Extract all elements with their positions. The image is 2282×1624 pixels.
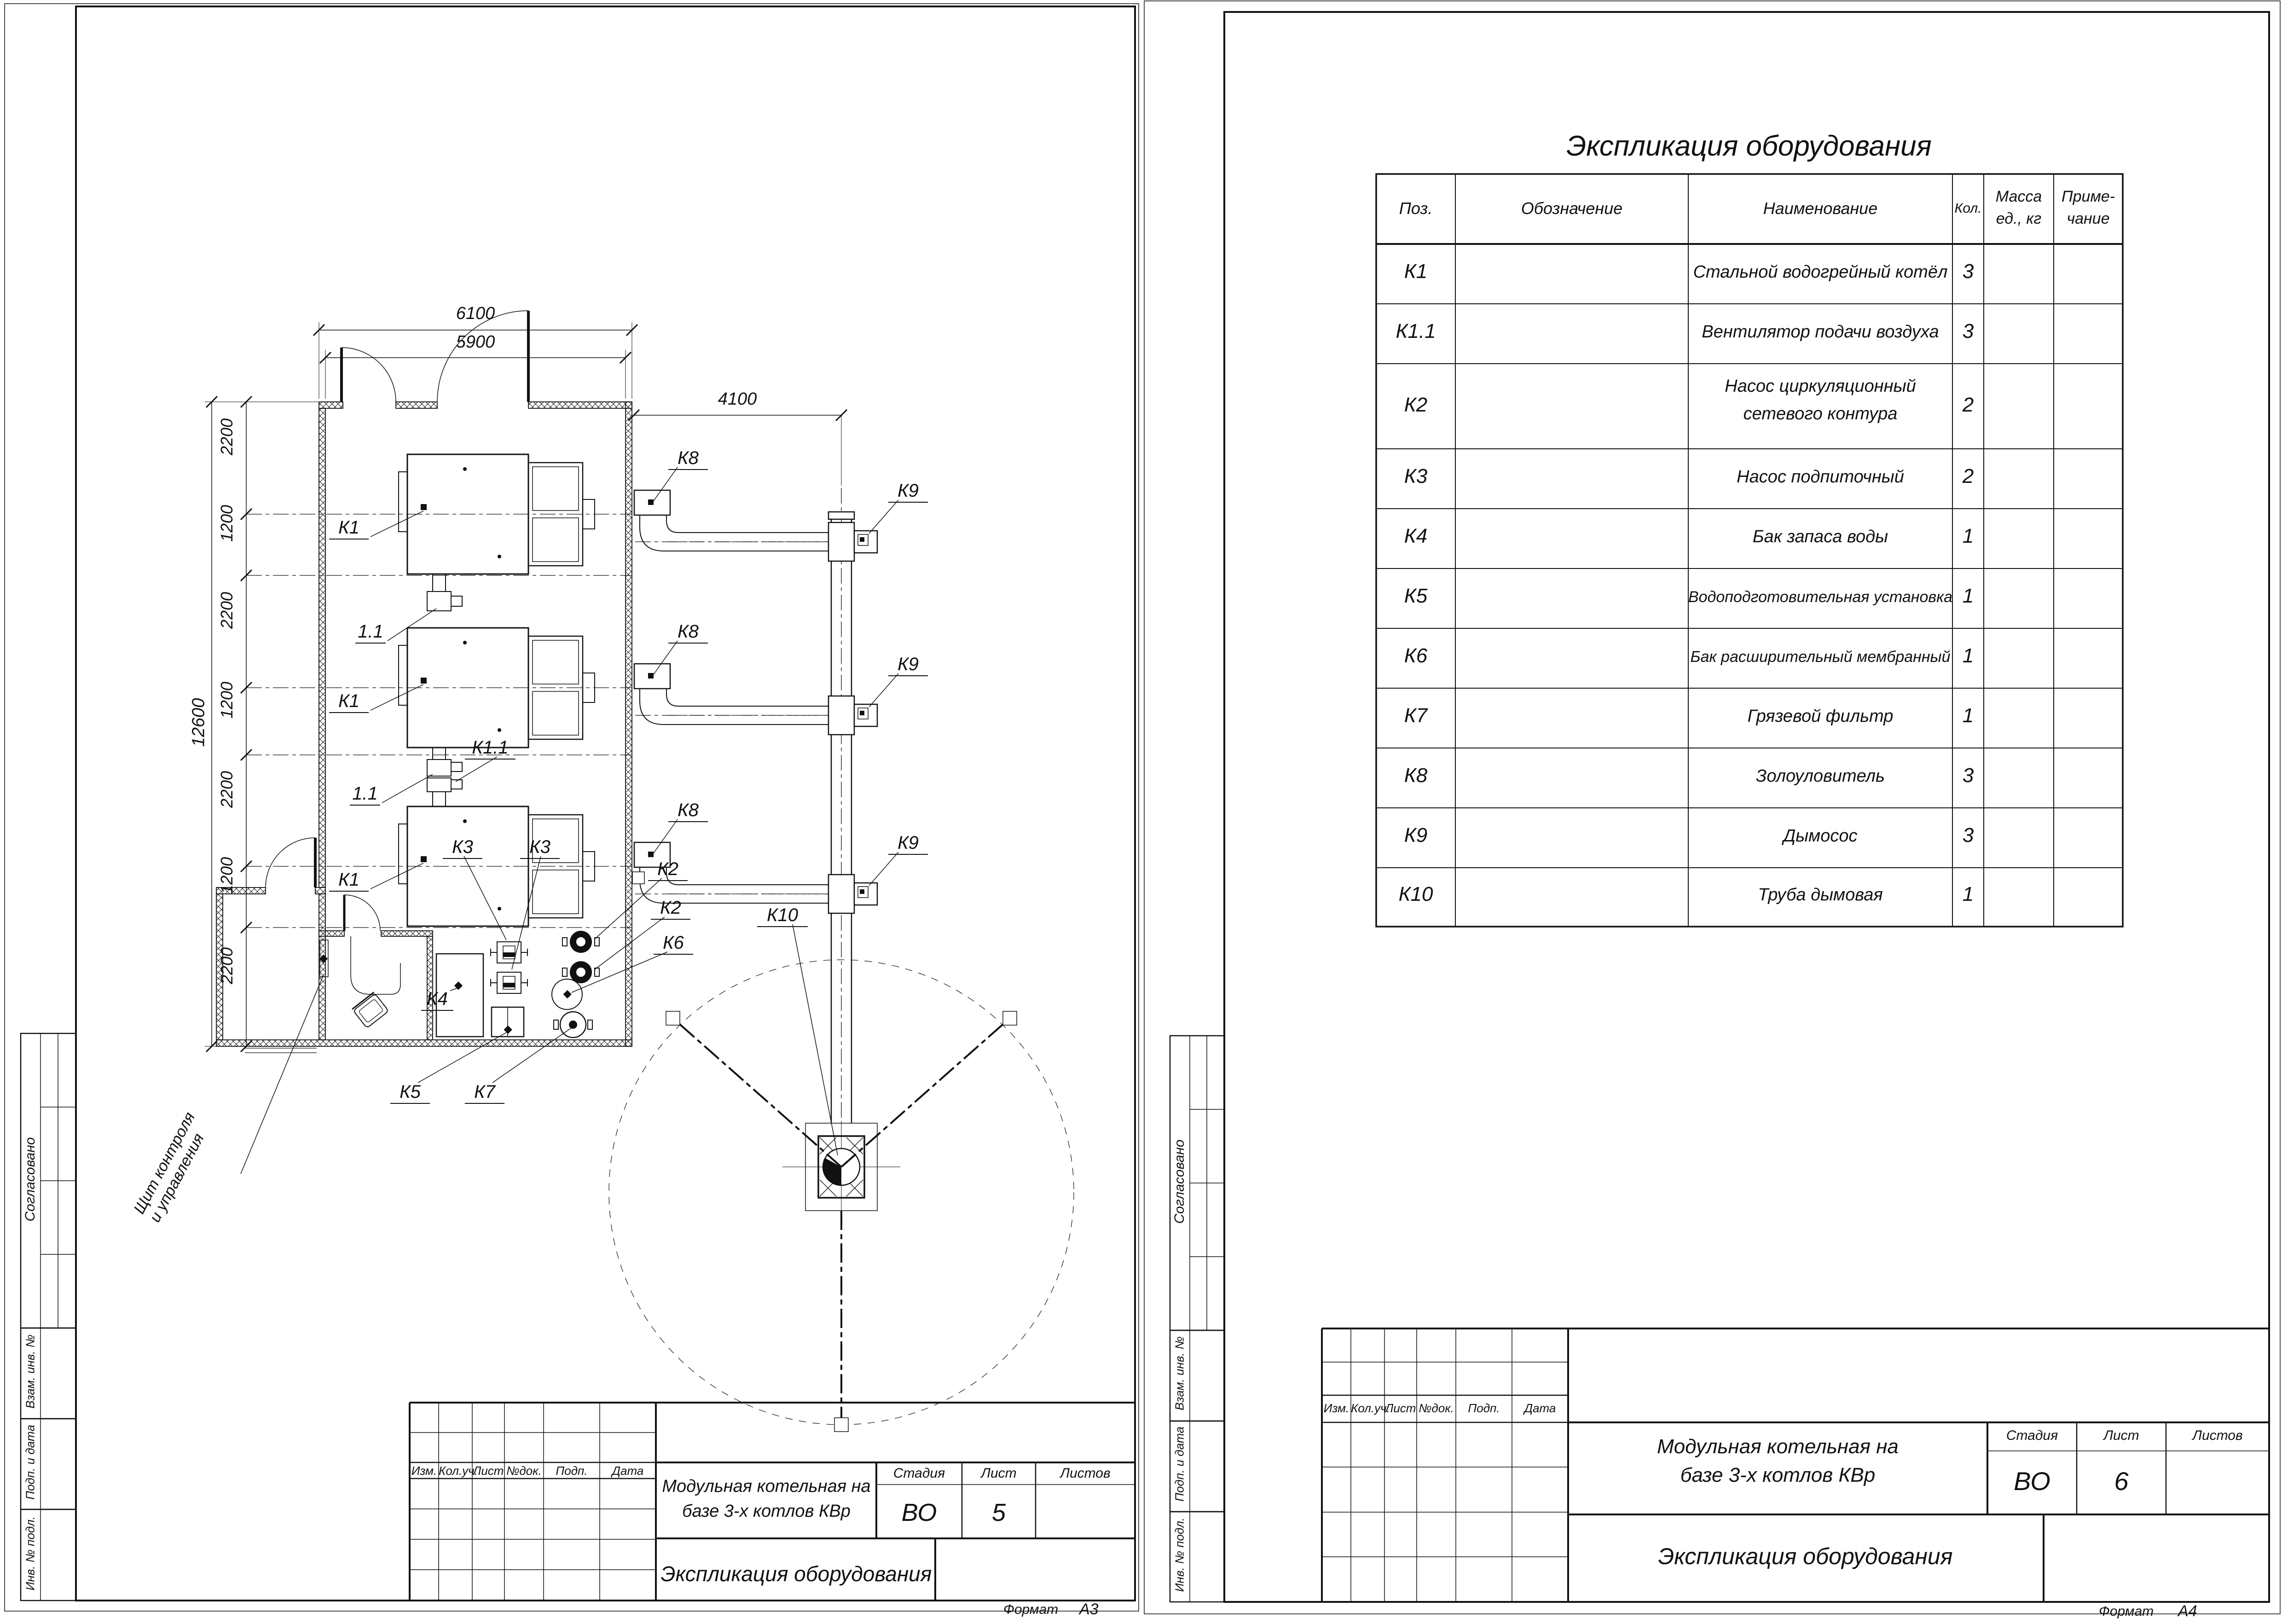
dim-top-outer: 6100 [443,304,508,324]
col-name: Наименование [1688,199,1952,218]
row-name: Насос подпиточный [1688,467,1952,487]
row-qty: 1 [1952,585,1984,608]
row-name-line2: сетевого контура [1688,404,1952,424]
doc-title: Экспликация оборудования [1570,1543,2041,1570]
rev-data: Дата [600,1464,656,1478]
table-title: Экспликация оборудования [1519,130,1979,162]
tag-ash-1: К8 [668,448,708,470]
col-mass-line1: Масса [1984,188,2054,206]
row-pos: К7 [1376,704,1455,727]
dim-chain-2: 1200 [217,493,237,553]
tag-burner-1: 1.1 [355,621,386,644]
row-pos: К2 [1376,394,1455,417]
format-value: А4 [2178,1602,2197,1620]
rev-dok: №док. [504,1464,544,1478]
tag-exp-tank: К6 [654,933,693,955]
sheets-label: Листов [1036,1466,1135,1481]
row-qty: 1 [1952,525,1984,548]
tag-filter: К7 [465,1082,504,1104]
sheet-label: Лист [2077,1428,2166,1444]
row-qty: 3 [1952,260,1984,283]
sheet-number: 5 [962,1498,1036,1527]
dim-chain-7: 2200 [217,936,237,996]
tag-ash-3: К8 [668,800,708,822]
drawing-page: 6100 5900 4100 12600 2200 1200 2200 1200… [0,0,2282,1615]
sheet-number: 6 [2077,1466,2166,1496]
tag-pump-net-1: К2 [648,859,688,881]
project-title-line2: базе 3-х котлов КВр [1570,1464,1986,1487]
row-pos: К9 [1376,824,1455,847]
row-name: Грязевой фильтр [1688,707,1952,726]
row-name: Стальной водогрейный котёл [1688,262,1952,282]
margin-inv-orig: Инв. № подл. [1173,1486,1187,1624]
drawing-linework [0,0,2282,1615]
row-pos: К10 [1376,883,1455,906]
tag-burner-2: 1.1 [350,783,380,806]
row-qty: 1 [1952,883,1984,906]
col-designation: Обозначение [1455,199,1688,218]
dim-left-overall: 12600 [189,686,209,760]
row-name: Водоподготовительная установка [1688,588,1952,606]
row-qty: 2 [1952,394,1984,417]
row-name: Бак расширительный мембранный [1688,648,1952,666]
row-pos: К3 [1376,465,1455,488]
tag-smoke-3: К9 [888,833,928,855]
rev-data: Дата [1512,1401,1568,1415]
tag-boiler-2: К1 [329,691,369,713]
tag-smoke-2: К9 [888,654,928,676]
rev-list: Лист [1384,1401,1417,1415]
row-pos: К5 [1376,585,1455,608]
tag-tank: К4 [421,989,453,1011]
rev-koluch: Кол.уч. [1351,1401,1384,1415]
rev-podp: Подп. [544,1464,600,1478]
doc-title: Экспликация оборудования [658,1561,934,1586]
dim-chain-4: 1200 [217,670,237,730]
stage-value: ВО [876,1498,962,1527]
stage-label: Стадия [1987,1428,2077,1444]
tag-ash-2: К8 [668,621,708,644]
dim-chain-3: 2200 [217,580,237,640]
row-name-line1: Насос циркуляционный [1688,377,1952,396]
dim-chain-1: 2200 [217,407,237,467]
row-pos: К1 [1376,260,1455,283]
dim-chain-6: 1200 [217,846,237,905]
tag-fan: К1.1 [465,737,515,760]
row-pos: К6 [1376,644,1455,667]
row-name: Вентилятор подачи воздуха [1688,322,1952,342]
row-qty: 2 [1952,465,1984,488]
format-value: А3 [1079,1601,1099,1618]
sheet-label: Лист [962,1466,1036,1481]
rev-izm: Изм. [1322,1401,1351,1415]
col-note-line2: чание [2054,210,2123,228]
project-title-line2: базе 3-х котлов КВр [658,1502,875,1521]
row-qty: 1 [1952,704,1984,727]
row-name: Труба дымовая [1688,885,1952,905]
row-name: Дымосос [1688,826,1952,846]
stage-value: ВО [1987,1466,2077,1496]
row-qty: 1 [1952,644,1984,667]
rev-list: Лист [472,1464,504,1478]
rev-podp: Подп. [1456,1401,1512,1415]
margin-inv-orig: Инв. № подл. [23,1485,38,1623]
row-pos: К8 [1376,764,1455,787]
rev-dok: №док. [1417,1401,1456,1415]
rev-izm: Изм. [410,1464,439,1478]
rev-koluch: Кол.уч. [439,1464,472,1478]
col-note-line1: Приме- [2054,188,2123,206]
tag-boiler-3: К1 [329,870,369,892]
project-title-line1: Модульная котельная на [658,1477,875,1496]
format-label: Формат [1003,1602,1058,1618]
row-name: Бак запаса воды [1688,527,1952,547]
col-qty: Кол. [1952,201,1984,216]
tag-smoke-1: К9 [888,481,928,503]
tag-chimney: К10 [757,905,808,927]
col-pos: Поз. [1376,199,1455,218]
sheet-left-frame [5,4,1139,1611]
margin-approved: Согласовано [23,1110,38,1248]
margin-approved: Согласовано [1172,1113,1187,1251]
tag-water-unit: К5 [390,1082,430,1104]
project-title-line1: Модульная котельная на [1570,1435,1986,1458]
tag-boiler-1: К1 [329,517,369,539]
row-name: Золоуловитель [1688,766,1952,786]
sheets-label: Листов [2166,1428,2269,1444]
col-mass-line2: ед., кг [1984,210,2054,228]
row-qty: 3 [1952,320,1984,343]
tag-pump-feed-1: К3 [443,837,482,859]
row-qty: 3 [1952,824,1984,847]
stage-label: Стадия [876,1466,962,1481]
row-pos: К1.1 [1376,320,1455,343]
row-pos: К4 [1376,525,1455,548]
dim-chain-5: 2200 [217,760,237,819]
tag-pump-net-2: К2 [651,898,690,920]
dim-right: 4100 [705,389,770,409]
format-label: Формат [2099,1604,2154,1619]
tag-pump-feed-2: К3 [520,837,560,859]
dim-top-inner: 5900 [443,332,508,352]
row-qty: 3 [1952,764,1984,787]
